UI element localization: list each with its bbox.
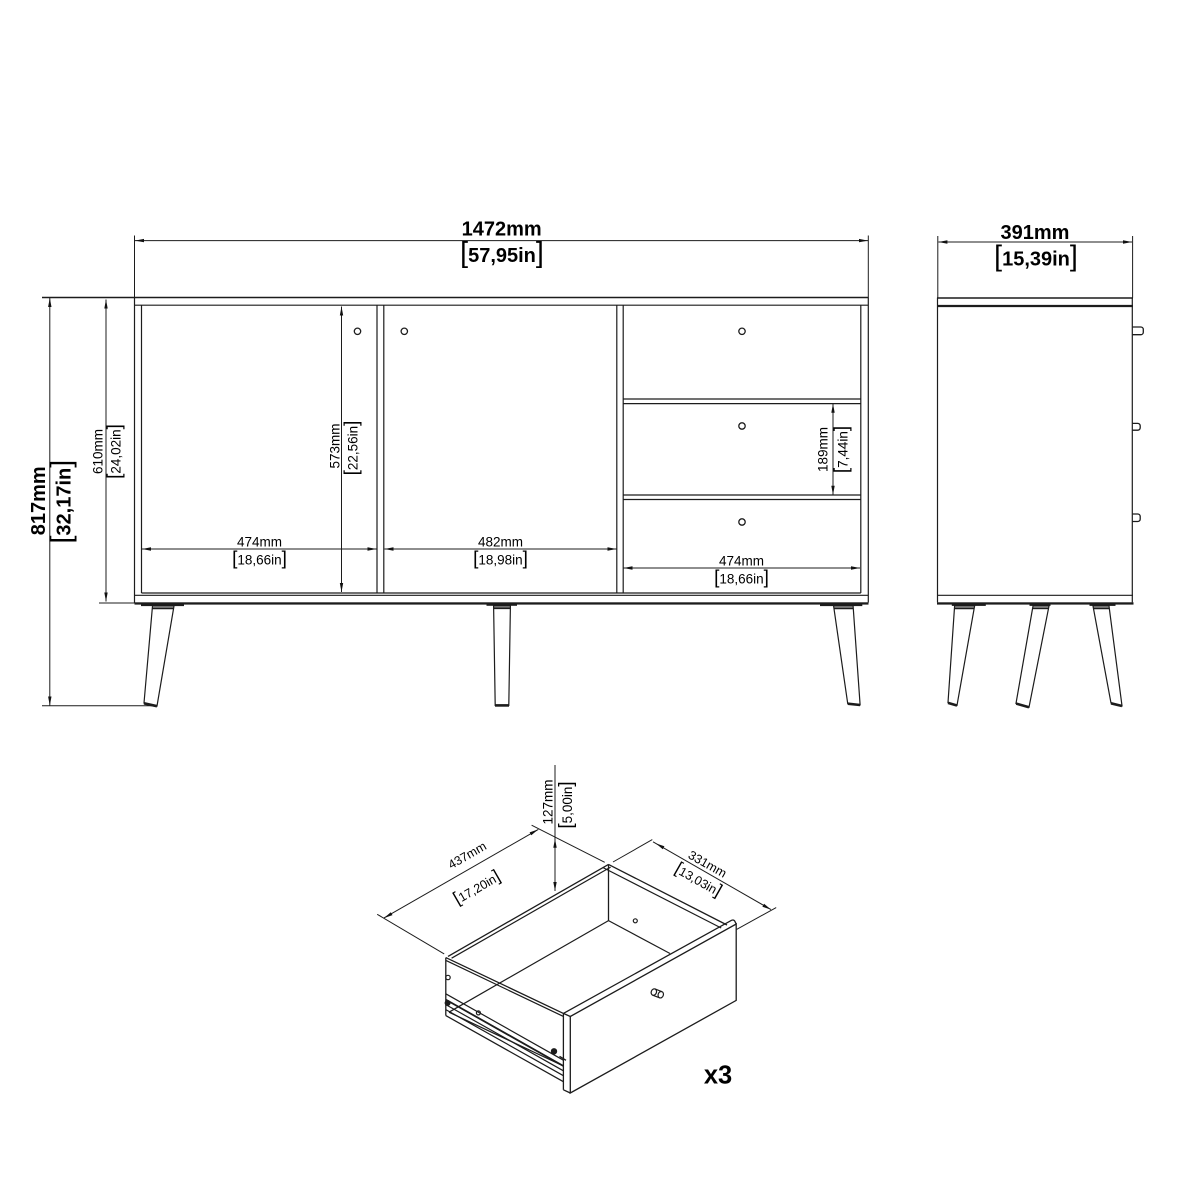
svg-text:482mm: 482mm — [478, 535, 523, 550]
svg-text:573mm: 573mm — [327, 423, 342, 468]
svg-text:[22,56in]: [22,56in] — [342, 421, 363, 476]
svg-text:x3: x3 — [704, 1062, 732, 1090]
svg-text:127mm: 127mm — [540, 779, 555, 824]
svg-text:[18,66in]: [18,66in] — [714, 568, 769, 589]
svg-text:474mm: 474mm — [237, 535, 282, 550]
svg-text:[24,02in]: [24,02in] — [105, 424, 126, 479]
svg-text:[5,00in]: [5,00in] — [556, 781, 577, 828]
svg-text:391mm: 391mm — [1001, 222, 1070, 244]
svg-text:817mm: 817mm — [28, 466, 50, 535]
svg-text:189mm: 189mm — [816, 427, 831, 472]
svg-text:474mm: 474mm — [719, 554, 764, 569]
svg-text:610mm: 610mm — [90, 429, 105, 474]
svg-text:[7,44in]: [7,44in] — [832, 426, 853, 473]
svg-text:[18,66in]: [18,66in] — [232, 548, 287, 569]
svg-text:[18,98in]: [18,98in] — [473, 548, 528, 569]
svg-text:1472mm: 1472mm — [462, 218, 542, 240]
